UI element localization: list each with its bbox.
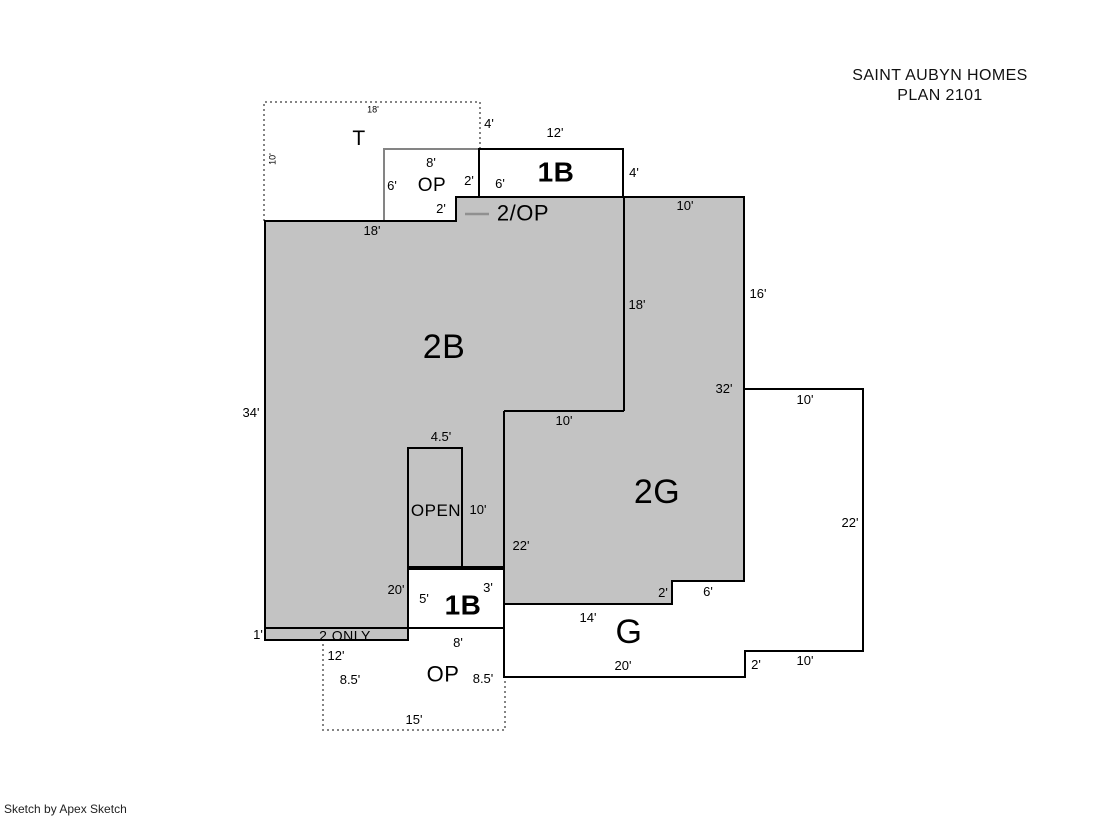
dimension-label: 18' xyxy=(367,105,379,114)
dimension-label: 6' xyxy=(387,179,397,193)
zone-label-op-top: OP xyxy=(418,176,446,196)
dimension-label: 8' xyxy=(426,156,436,170)
plan-title-line2: PLAN 2101 xyxy=(852,86,1027,106)
dimension-label: 14' xyxy=(580,611,597,625)
floor-plan-drawing xyxy=(0,0,1119,821)
dimension-label: 10' xyxy=(556,414,573,428)
dimension-label: 2' xyxy=(464,174,474,188)
zone-note-2-only: 2 ONLY xyxy=(319,629,371,640)
dimension-label: 6' xyxy=(703,585,713,599)
area-t-outline xyxy=(264,102,480,221)
dimension-label: 34' xyxy=(243,406,260,420)
zone-label-2b: 2B xyxy=(423,330,466,366)
dimension-label: 12' xyxy=(328,649,345,663)
dimension-label: 22' xyxy=(513,539,530,553)
plan-title: SAINT AUBYN HOMES PLAN 2101 xyxy=(852,66,1027,106)
dimension-label: 18' xyxy=(629,298,646,312)
dimension-label: 4' xyxy=(484,117,494,131)
zone-label-g: G xyxy=(616,615,643,651)
sketch-credit: Sketch by Apex Sketch xyxy=(4,802,127,816)
zone-label-1b-top: 1B xyxy=(538,157,575,186)
zone-label-2op: 2/OP xyxy=(497,201,549,224)
dimension-label: 12' xyxy=(547,126,564,140)
dimension-label: 8' xyxy=(453,636,463,650)
dimension-label: 10' xyxy=(797,393,814,407)
dimension-label: 1' xyxy=(253,628,263,642)
dimension-label: 15' xyxy=(406,713,423,727)
dimension-label: 5' xyxy=(419,592,429,606)
dimension-label: 2' xyxy=(436,202,446,216)
dimension-label: 8.5' xyxy=(473,672,494,686)
floor-plan-canvas: SAINT AUBYN HOMES PLAN 2101 TOP1B2/OP2B2… xyxy=(0,0,1119,821)
dimension-label: 10' xyxy=(470,503,487,517)
dimension-label: 4.5' xyxy=(431,430,452,444)
dimension-label: 3' xyxy=(483,581,493,595)
dimension-label: 2' xyxy=(658,586,668,600)
dimension-label: 20' xyxy=(615,659,632,673)
dimension-label: 2' xyxy=(751,658,761,672)
dimension-label: 6' xyxy=(495,177,505,191)
dimension-label: 32' xyxy=(716,382,733,396)
dimension-label: 20' xyxy=(388,583,405,597)
dimension-label: 8.5' xyxy=(340,673,361,687)
zone-label-t: T xyxy=(352,128,365,150)
dimension-label: 16' xyxy=(750,287,767,301)
dimension-label: 10' xyxy=(797,654,814,668)
zone-label-op-bottom: OP xyxy=(427,662,460,685)
plan-title-line1: SAINT AUBYN HOMES xyxy=(852,66,1027,86)
zone-label-1b-bottom: 1B xyxy=(445,590,482,619)
dimension-label: 4' xyxy=(629,166,639,180)
dimension-label: 18' xyxy=(364,224,381,238)
dimension-label: 10' xyxy=(677,199,694,213)
zone-label-open: OPEN xyxy=(411,502,461,520)
zone-label-2g: 2G xyxy=(634,475,680,511)
dimension-label: 22' xyxy=(842,516,859,530)
dimension-label: 10' xyxy=(268,153,277,165)
